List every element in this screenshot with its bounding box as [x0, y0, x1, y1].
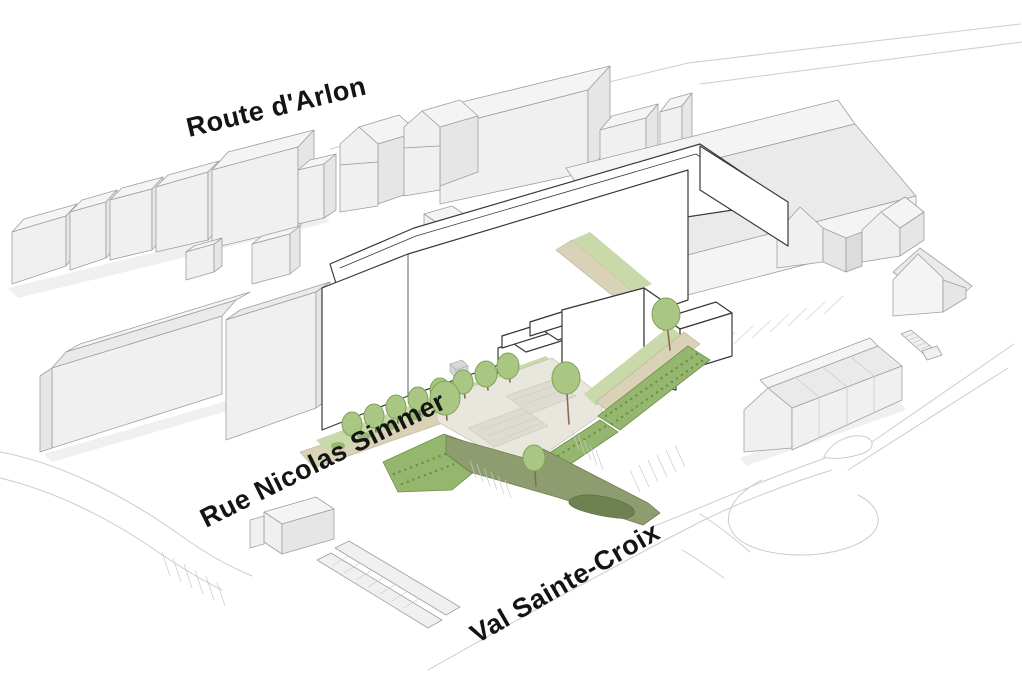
route-arlon-row — [12, 130, 336, 284]
l-building-west — [40, 282, 330, 452]
stairs-ne — [901, 330, 942, 360]
street-label-val-sainte-croix: Val Sainte-Croix — [465, 516, 665, 649]
rowhouses-se — [744, 338, 902, 452]
site-plan: Route d'Arlon Rue Nicolas Simmer Val Sai… — [0, 0, 1022, 699]
small-house-ne — [893, 248, 972, 316]
site-plan-page: Route d'Arlon Rue Nicolas Simmer Val Sai… — [0, 0, 1022, 699]
kiosk-sw — [250, 497, 460, 628]
street-label-route-darlon: Route d'Arlon — [183, 71, 369, 143]
